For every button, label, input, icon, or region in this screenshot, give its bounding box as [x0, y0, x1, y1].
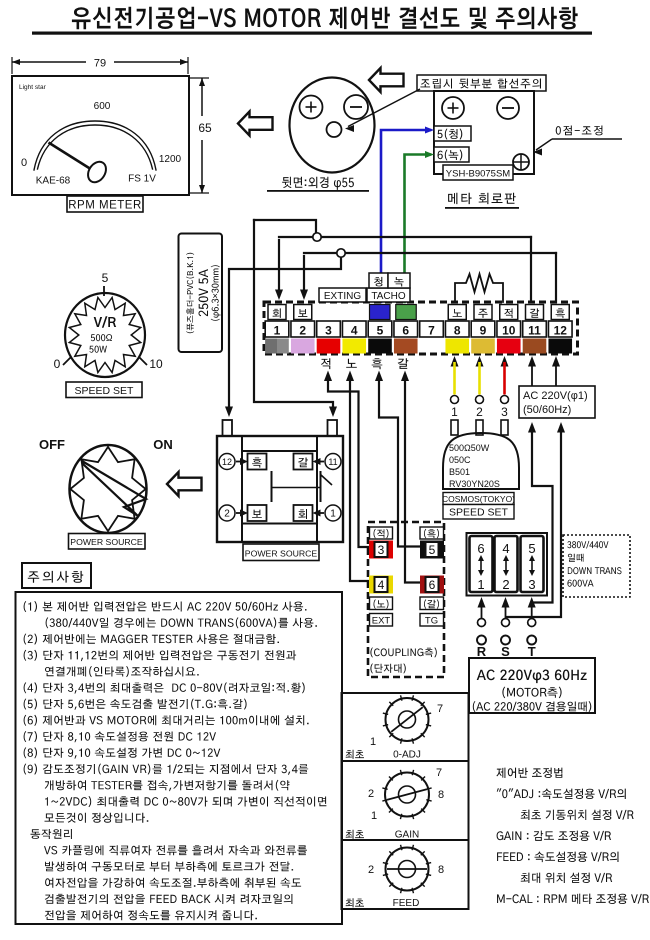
svg-text:6: 6 — [477, 541, 484, 556]
svg-text:7: 7 — [428, 324, 435, 338]
svg-text:TACHO: TACHO — [371, 291, 405, 302]
svg-text:RPM METER: RPM METER — [68, 200, 142, 212]
svg-text:1: 1 — [451, 405, 458, 419]
svg-text:7: 7 — [436, 767, 442, 779]
svg-text:500Ω50W: 500Ω50W — [449, 443, 490, 453]
svg-text:1: 1 — [477, 577, 484, 592]
svg-text:GAIN: GAIN — [395, 830, 419, 841]
svg-text:11: 11 — [528, 324, 541, 338]
svg-text:5: 5 — [377, 324, 384, 338]
svg-text:1: 1 — [330, 509, 336, 520]
svg-text:65: 65 — [198, 121, 212, 135]
svg-text:3: 3 — [501, 405, 508, 419]
svg-text:8: 8 — [454, 324, 461, 338]
svg-text:3: 3 — [528, 577, 535, 592]
svg-text:10: 10 — [502, 324, 516, 338]
svg-text:5: 5 — [102, 271, 109, 285]
svg-text:4: 4 — [502, 541, 509, 556]
svg-text:050C: 050C — [449, 455, 471, 465]
svg-text:1: 1 — [370, 736, 376, 748]
svg-text:10: 10 — [149, 357, 163, 371]
svg-text:EXT: EXT — [372, 616, 391, 627]
svg-text:FS 1V: FS 1V — [128, 174, 156, 185]
svg-text:EXTING: EXTING — [324, 291, 361, 302]
svg-text:RV30YN20S: RV30YN20S — [449, 479, 500, 489]
svg-text:OFF: OFF — [39, 437, 65, 452]
svg-text:2: 2 — [502, 577, 509, 592]
svg-text:KAE-68: KAE-68 — [36, 176, 71, 187]
svg-text:9: 9 — [480, 324, 487, 338]
svg-text:600: 600 — [94, 101, 111, 112]
svg-text:6: 6 — [429, 578, 436, 592]
svg-text:SPEED SET: SPEED SET — [449, 507, 509, 519]
svg-text:SPEED SET: SPEED SET — [75, 385, 135, 397]
svg-text:8: 8 — [438, 789, 444, 801]
svg-text:FEED: FEED — [393, 898, 420, 909]
svg-text:79: 79 — [94, 58, 106, 70]
svg-text:2: 2 — [476, 405, 483, 419]
svg-text:3: 3 — [325, 324, 332, 338]
svg-text:T: T — [528, 644, 536, 659]
svg-text:4: 4 — [378, 578, 385, 592]
svg-text:2: 2 — [368, 864, 374, 876]
svg-text:4: 4 — [351, 324, 358, 338]
svg-text:1: 1 — [274, 324, 281, 338]
svg-text:POWER SOURCE: POWER SOURCE — [70, 537, 143, 547]
svg-text:0: 0 — [21, 157, 27, 169]
svg-text:S: S — [501, 644, 510, 659]
svg-text:B501: B501 — [449, 467, 470, 477]
svg-text:3: 3 — [378, 543, 385, 557]
svg-text:0: 0 — [54, 357, 61, 371]
svg-text:1: 1 — [371, 810, 377, 822]
svg-text:COSMOS(TOKYO): COSMOS(TOKYO) — [442, 494, 515, 504]
svg-text:Light star: Light star — [19, 84, 47, 91]
svg-text:1200: 1200 — [159, 154, 182, 165]
svg-text:7: 7 — [437, 703, 443, 715]
svg-text:6: 6 — [402, 324, 409, 338]
svg-text:2: 2 — [368, 788, 374, 800]
svg-text:YSH-B9075SM: YSH-B9075SM — [446, 169, 511, 180]
svg-text:2: 2 — [224, 509, 230, 520]
svg-text:0-ADJ: 0-ADJ — [393, 750, 421, 761]
svg-text:(50/60Hz): (50/60Hz) — [523, 404, 571, 416]
svg-text:12: 12 — [554, 324, 568, 338]
svg-text:2: 2 — [299, 324, 306, 338]
svg-text:12: 12 — [222, 457, 232, 467]
svg-text:5: 5 — [528, 541, 535, 556]
svg-text:R: R — [477, 644, 487, 659]
svg-text:TG: TG — [425, 616, 438, 627]
svg-text:AC 220V(φ1): AC 220V(φ1) — [523, 390, 588, 402]
svg-text:POWER SOURCE: POWER SOURCE — [245, 549, 318, 559]
svg-text:11: 11 — [328, 457, 337, 467]
svg-text:8: 8 — [438, 864, 444, 876]
svg-text:ON: ON — [153, 437, 173, 452]
svg-text:5: 5 — [429, 543, 436, 557]
